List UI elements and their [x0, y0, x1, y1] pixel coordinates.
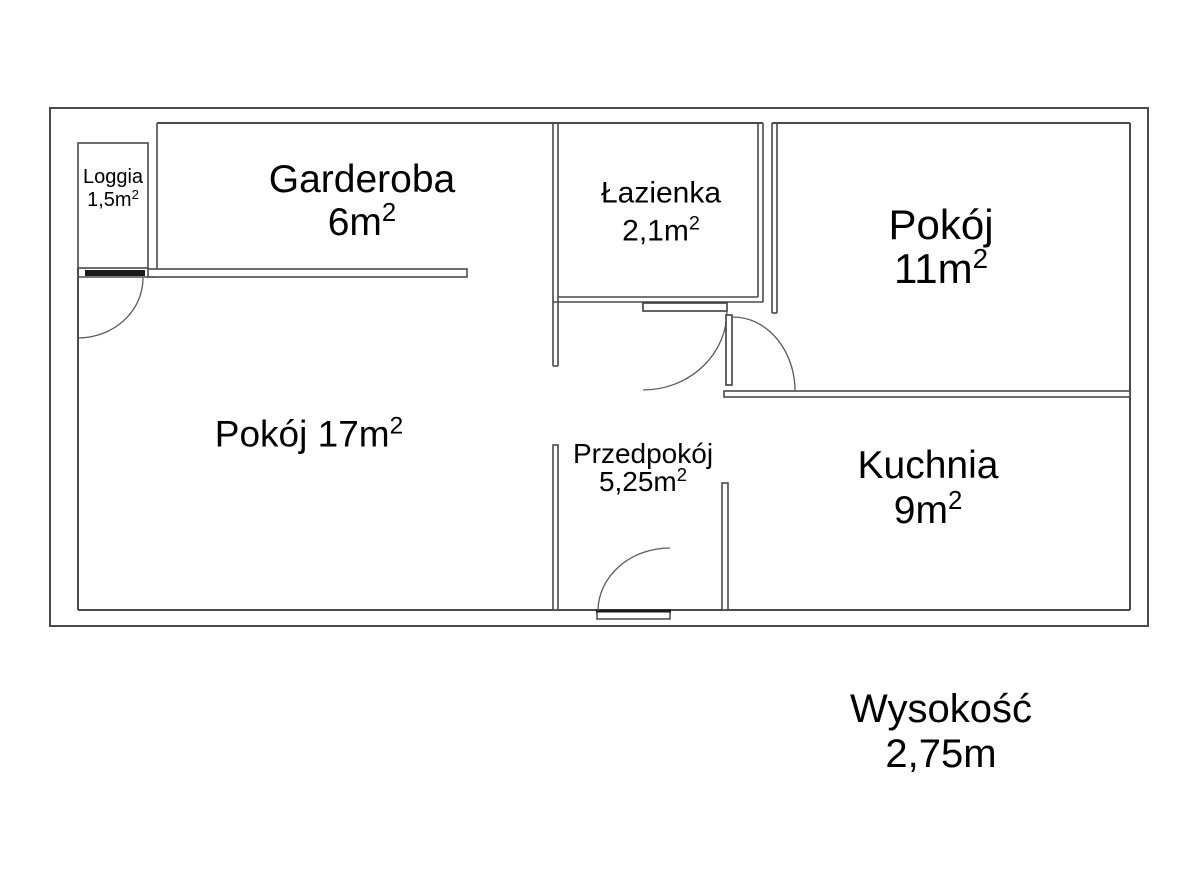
- pokoj-11-door-arc: [733, 317, 795, 391]
- height-annotation: Wysokość 2,75m: [850, 687, 1032, 777]
- floorplan-page: Loggia 1,5m2 Garderoba 6m2 Łazienka 2,1m…: [0, 0, 1200, 894]
- room-name: Pokój 17m: [215, 414, 390, 455]
- superscript: 2: [390, 412, 404, 439]
- superscript: 2: [382, 199, 396, 227]
- room-area: 6m2: [269, 202, 455, 245]
- height-annotation-value: 2,75m: [850, 732, 1032, 777]
- superscript: 2: [132, 187, 139, 202]
- balcony-door: [78, 270, 145, 338]
- room-label-lazienka: Łazienka 2,1m2: [601, 175, 721, 250]
- room-label-pokoj-11: Pokój 11m2: [888, 203, 993, 291]
- room-label-przedpokoj: Przedpokój 5,25m2: [573, 440, 713, 496]
- lazienka-door-leaf: [643, 303, 727, 311]
- room-area: 5,25m2: [573, 468, 713, 496]
- lazienka-door-arc: [643, 311, 727, 390]
- room-name: Pokój: [888, 203, 993, 247]
- room-label-pokoj-17: Pokój 17m2: [215, 416, 403, 453]
- room-name: Przedpokój: [573, 440, 713, 468]
- room-name: Loggia: [83, 166, 143, 189]
- room-area: 9m2: [858, 489, 999, 534]
- room-area: 11m2: [888, 247, 993, 291]
- pokoj-11-door: [726, 315, 795, 391]
- balcony-door-leaf: [85, 270, 145, 276]
- superscript: 2: [948, 487, 962, 515]
- room-name: Kuchnia: [858, 444, 999, 489]
- superscript: 2: [689, 212, 700, 234]
- room-label-loggia: Loggia 1,5m2: [83, 166, 143, 212]
- entrance-door: [596, 548, 671, 619]
- height-annotation-title: Wysokość: [850, 687, 1032, 732]
- entrance-door-arc: [598, 548, 670, 611]
- room-label-kuchnia: Kuchnia 9m2: [858, 444, 999, 534]
- room-area: 1,5m2: [83, 189, 143, 212]
- balcony-door-arc: [78, 278, 143, 338]
- outer-walls: [50, 108, 1148, 626]
- superscript: 2: [677, 464, 687, 485]
- room-name: Łazienka: [601, 175, 721, 213]
- room-area: 2,1m2: [601, 212, 721, 250]
- pokoj-11-door-leaf: [726, 315, 732, 385]
- superscript: 2: [973, 243, 988, 274]
- room-name: Garderoba: [269, 159, 455, 202]
- room-label-garderoba: Garderoba 6m2: [269, 159, 455, 245]
- lazienka-door: [643, 303, 727, 390]
